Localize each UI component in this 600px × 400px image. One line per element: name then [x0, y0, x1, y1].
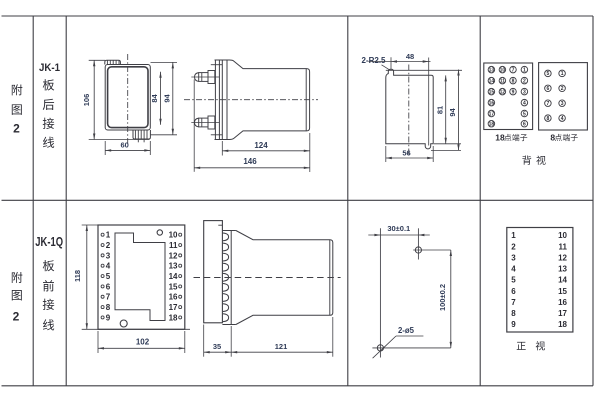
svg-text:6: 6 [547, 86, 550, 92]
svg-text:8: 8 [106, 303, 111, 312]
svg-text:146: 146 [243, 157, 257, 166]
svg-text:124: 124 [254, 141, 268, 150]
svg-text:94: 94 [448, 108, 457, 117]
svg-text:14: 14 [489, 78, 495, 84]
svg-text:4: 4 [523, 100, 526, 106]
svg-text:8: 8 [547, 116, 550, 122]
svg-text:18: 18 [489, 122, 495, 128]
svg-text:12: 12 [169, 251, 178, 260]
svg-text:5: 5 [106, 272, 111, 281]
svg-text:48: 48 [406, 52, 414, 61]
svg-text:1: 1 [523, 67, 526, 73]
svg-text:102: 102 [136, 338, 150, 347]
svg-text:118: 118 [73, 270, 82, 282]
svg-text:5: 5 [511, 276, 516, 285]
svg-text:2: 2 [13, 121, 20, 135]
svg-text:13: 13 [558, 265, 567, 274]
svg-text:7: 7 [106, 293, 111, 302]
svg-text:16: 16 [169, 293, 178, 302]
svg-text:2: 2 [523, 78, 526, 84]
svg-text:17: 17 [169, 303, 178, 312]
svg-text:11: 11 [500, 78, 506, 84]
svg-text:12: 12 [500, 89, 506, 95]
svg-text:15: 15 [558, 287, 567, 296]
svg-text:18: 18 [558, 320, 567, 329]
svg-text:100±0.2: 100±0.2 [438, 284, 447, 311]
svg-text:9: 9 [106, 313, 111, 322]
svg-text:1: 1 [106, 231, 111, 240]
svg-text:5: 5 [523, 111, 526, 117]
svg-text:3: 3 [561, 101, 564, 107]
svg-text:10: 10 [169, 231, 178, 240]
svg-text:2: 2 [511, 242, 516, 251]
svg-text:11: 11 [169, 241, 178, 250]
svg-text:10: 10 [500, 67, 506, 73]
svg-text:9: 9 [511, 320, 516, 329]
svg-text:11: 11 [559, 242, 568, 251]
svg-text:4: 4 [511, 265, 516, 274]
svg-text:14: 14 [169, 272, 178, 281]
svg-text:17: 17 [489, 111, 495, 117]
svg-text:106: 106 [82, 94, 91, 107]
svg-text:56: 56 [402, 148, 410, 157]
svg-text:7: 7 [512, 67, 515, 73]
svg-text:2-ø5: 2-ø5 [398, 326, 415, 335]
svg-text:60: 60 [121, 141, 129, 150]
svg-text:JK-1Q: JK-1Q [35, 235, 63, 249]
svg-text:16: 16 [489, 100, 495, 106]
svg-text:12: 12 [558, 253, 567, 262]
svg-text:17: 17 [558, 309, 567, 318]
svg-text:6: 6 [106, 282, 111, 291]
svg-text:1: 1 [561, 71, 564, 77]
svg-text:8: 8 [511, 309, 516, 318]
svg-text:16: 16 [558, 298, 567, 307]
svg-text:14: 14 [558, 276, 567, 285]
svg-text:6: 6 [523, 122, 526, 128]
svg-text:15: 15 [169, 282, 178, 291]
svg-text:7: 7 [511, 298, 516, 307]
svg-text:81: 81 [435, 106, 444, 114]
svg-text:7: 7 [547, 101, 550, 107]
svg-text:1: 1 [511, 231, 516, 240]
svg-text:18: 18 [495, 132, 505, 142]
svg-text:9: 9 [512, 89, 515, 95]
svg-text:8: 8 [512, 78, 515, 84]
svg-text:84: 84 [150, 94, 159, 103]
svg-text:121: 121 [275, 342, 288, 351]
svg-text:6: 6 [511, 287, 516, 296]
svg-text:10: 10 [558, 231, 567, 240]
svg-text:2-R2.5: 2-R2.5 [361, 56, 386, 65]
svg-text:8: 8 [550, 132, 555, 142]
svg-text:5: 5 [547, 71, 550, 77]
svg-text:30±0.1: 30±0.1 [387, 224, 410, 233]
svg-text:15: 15 [489, 89, 495, 95]
svg-text:4: 4 [561, 116, 564, 122]
svg-text:18: 18 [169, 313, 178, 322]
svg-text:3: 3 [523, 89, 526, 95]
svg-text:2: 2 [561, 86, 564, 92]
svg-text:13: 13 [489, 67, 495, 73]
svg-text:JK-1: JK-1 [39, 62, 60, 74]
svg-text:3: 3 [106, 251, 111, 260]
svg-text:13: 13 [169, 262, 178, 271]
svg-text:2: 2 [13, 309, 20, 323]
svg-text:3: 3 [511, 253, 516, 262]
svg-text:2: 2 [106, 241, 111, 250]
svg-text:4: 4 [106, 262, 111, 271]
svg-text:35: 35 [213, 342, 221, 351]
svg-text:94: 94 [163, 94, 172, 103]
